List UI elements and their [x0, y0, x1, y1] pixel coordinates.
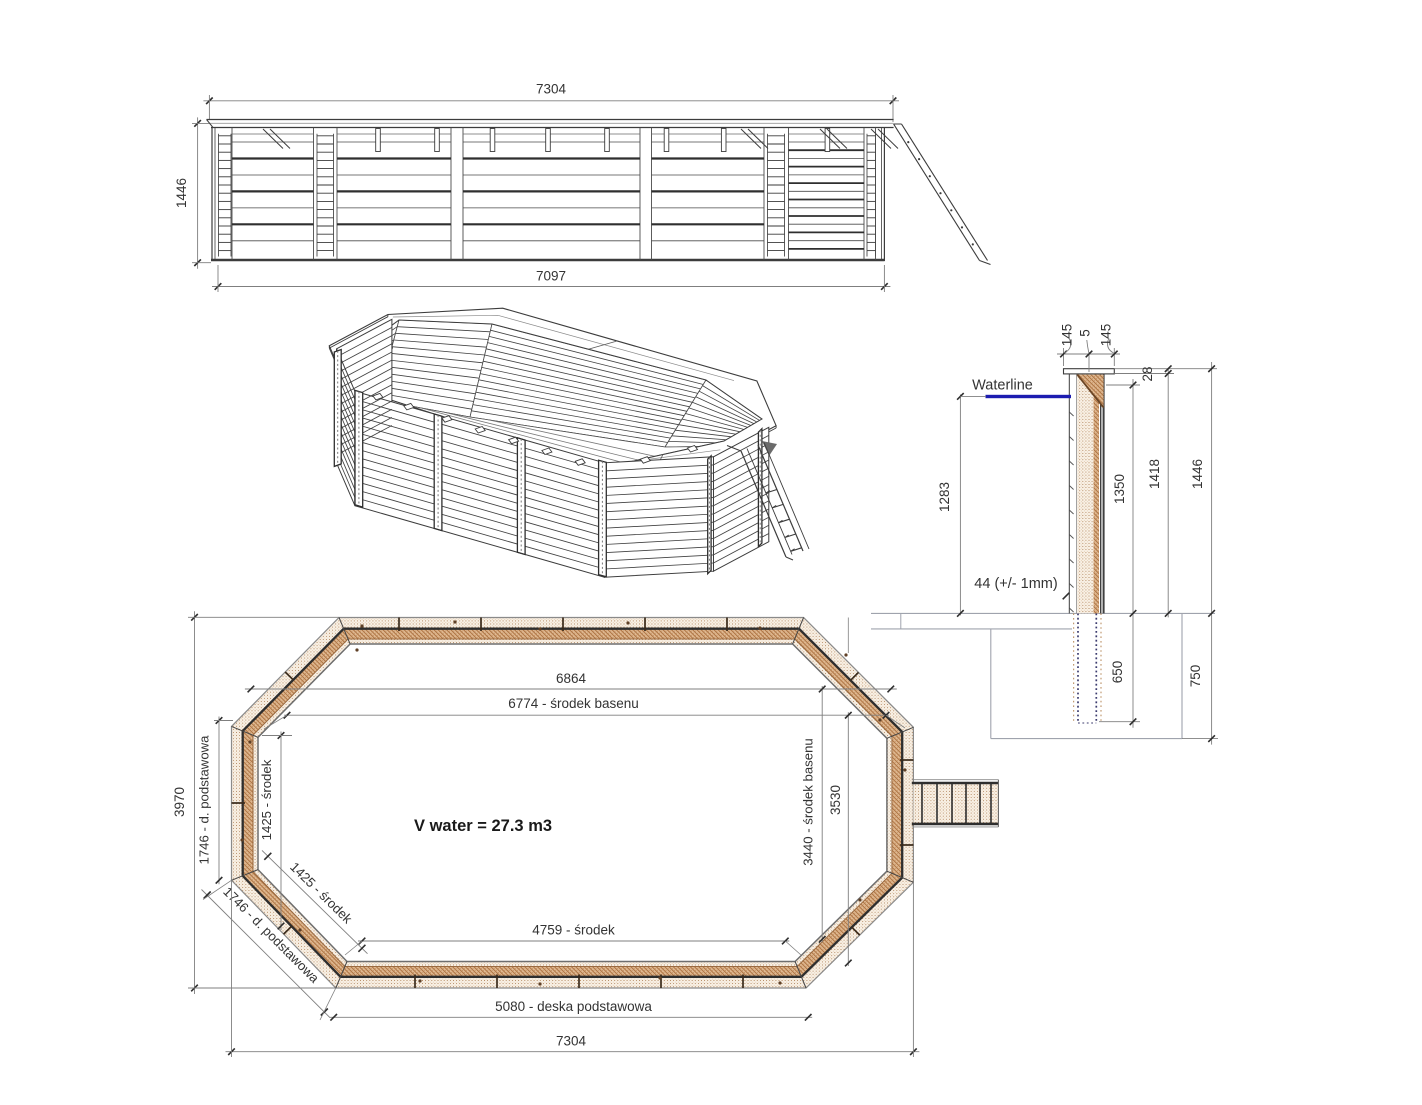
svg-text:4759 - środek: 4759 - środek: [532, 923, 615, 938]
svg-text:750: 750: [1188, 665, 1203, 688]
svg-text:145: 145: [1060, 324, 1075, 347]
svg-text:6864: 6864: [556, 671, 587, 686]
svg-text:1446: 1446: [174, 178, 189, 208]
svg-text:1283: 1283: [937, 482, 952, 512]
svg-text:6774 - środek basenu: 6774 - środek basenu: [508, 696, 639, 711]
svg-text:1418: 1418: [1147, 459, 1162, 489]
svg-text:3440 - środek basenu: 3440 - środek basenu: [801, 738, 816, 866]
svg-text:3970: 3970: [172, 787, 187, 817]
svg-text:7304: 7304: [556, 1034, 587, 1049]
svg-text:7304: 7304: [536, 82, 567, 97]
svg-text:7097: 7097: [536, 269, 566, 284]
svg-text:145: 145: [1099, 324, 1114, 347]
svg-text:28: 28: [1140, 366, 1155, 381]
svg-text:5: 5: [1078, 329, 1093, 337]
svg-text:1350: 1350: [1112, 474, 1127, 504]
svg-text:5080 - deska podstawowa: 5080 - deska podstawowa: [495, 999, 652, 1014]
svg-text:1446: 1446: [1190, 459, 1205, 489]
svg-text:1425 - środek: 1425 - środek: [259, 759, 274, 840]
svg-text:44 (+/- 1mm): 44 (+/- 1mm): [974, 576, 1057, 592]
svg-text:3530: 3530: [828, 785, 843, 815]
svg-text:650: 650: [1110, 661, 1125, 684]
svg-text:V water = 27.3 m3: V water = 27.3 m3: [414, 817, 552, 835]
svg-text:Waterline: Waterline: [972, 378, 1033, 394]
svg-text:1746 - d. podstawowa: 1746 - d. podstawowa: [197, 735, 212, 865]
